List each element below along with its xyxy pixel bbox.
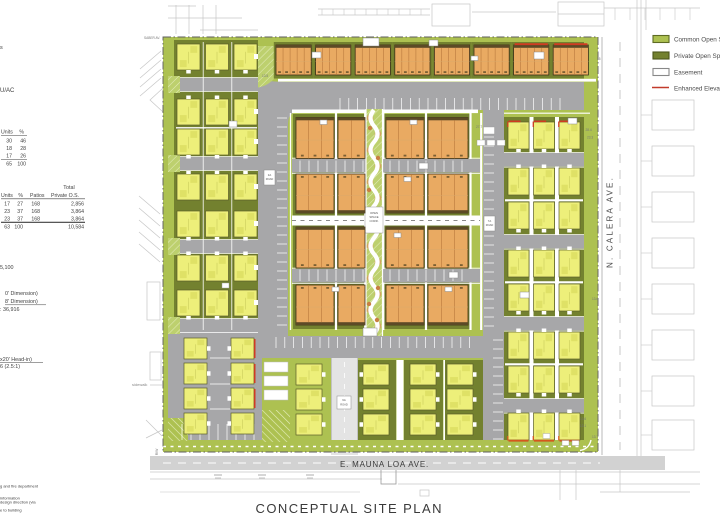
- svg-text:CORR.: CORR.: [369, 219, 378, 223]
- svg-text:27.7: 27.7: [476, 125, 482, 129]
- svg-text:13.7: 13.7: [592, 435, 598, 439]
- svg-text:3,864: 3,864: [71, 216, 84, 222]
- svg-text:Easement: Easement: [674, 70, 703, 77]
- svg-text:37: 37: [17, 216, 23, 222]
- svg-text:23: 23: [4, 216, 10, 222]
- svg-text:CONCEPTUAL SITE PLAN: CONCEPTUAL SITE PLAN: [256, 501, 443, 516]
- svg-text:SABER AV.: SABER AV.: [144, 36, 160, 40]
- svg-text:35: 35: [597, 57, 601, 61]
- svg-text:13.1: 13.1: [580, 424, 586, 428]
- svg-text:%: %: [18, 193, 23, 199]
- svg-text:28: 28: [20, 146, 26, 152]
- svg-text:%: %: [19, 130, 24, 136]
- svg-text:168: 168: [31, 216, 40, 222]
- svg-text:26: 26: [20, 154, 26, 160]
- svg-text:: 36,916: : 36,916: [0, 307, 19, 313]
- svg-text:168: 168: [31, 201, 40, 207]
- svg-text:0' Dimension): 0' Dimension): [5, 291, 38, 297]
- svg-text:g and fire department: g and fire department: [0, 484, 39, 489]
- svg-text:65: 65: [6, 162, 12, 168]
- svg-text:design direction (via: design direction (via: [0, 500, 36, 505]
- svg-text:13.6: 13.6: [580, 417, 586, 421]
- svg-text:Units: Units: [1, 130, 13, 136]
- svg-text:ROAD: ROAD: [486, 223, 494, 227]
- svg-text:8' Dimension): 8' Dimension): [5, 299, 38, 305]
- svg-text:Units: Units: [1, 193, 13, 199]
- svg-text:27: 27: [17, 201, 23, 207]
- svg-text:7A: 7A: [488, 219, 492, 223]
- svg-text:10,584: 10,584: [68, 225, 84, 231]
- svg-text:Total: Total: [63, 185, 74, 191]
- svg-text:3,864: 3,864: [71, 209, 84, 215]
- svg-text:6 (2.5:1): 6 (2.5:1): [0, 364, 20, 370]
- svg-text:3A: 3A: [268, 173, 272, 177]
- svg-text:9A: 9A: [342, 398, 346, 402]
- svg-text:100: 100: [14, 225, 23, 231]
- svg-text:13.6: 13.6: [592, 297, 598, 301]
- svg-text:18: 18: [6, 146, 12, 152]
- svg-text:Enhanced Elevations: Enhanced Elevations: [674, 86, 720, 93]
- svg-text:N. CALERA AVE.: N. CALERA AVE.: [606, 176, 615, 268]
- svg-text:168: 168: [31, 209, 40, 215]
- svg-text:Common Open Space: Common Open Space: [674, 37, 720, 44]
- svg-text:ROAD: ROAD: [266, 177, 274, 181]
- svg-text:Private Open Space: Private Open Space: [674, 53, 720, 60]
- svg-text:U/AC: U/AC: [0, 88, 15, 94]
- svg-text:28.4: 28.4: [586, 128, 592, 132]
- svg-text:17: 17: [6, 154, 12, 160]
- svg-text:37: 37: [17, 209, 23, 215]
- svg-text:e to building: e to building: [0, 508, 22, 513]
- svg-text:2,856: 2,856: [71, 201, 84, 207]
- svg-text:17: 17: [4, 201, 10, 207]
- svg-text:x20' Head-in): x20' Head-in): [0, 357, 32, 363]
- svg-text:23: 23: [4, 209, 10, 215]
- svg-text:100: 100: [17, 162, 26, 168]
- svg-text:63: 63: [4, 225, 10, 231]
- svg-text:E. MAUNA LOA AVE.: E. MAUNA LOA AVE.: [340, 460, 429, 469]
- svg-text:R/W: R/W: [155, 448, 159, 455]
- svg-text:s: s: [0, 45, 3, 51]
- svg-text:23.3: 23.3: [587, 136, 593, 140]
- svg-text:Patios: Patios: [30, 193, 45, 199]
- svg-text:sidewalk: sidewalk: [132, 382, 147, 387]
- svg-text:30: 30: [6, 139, 12, 145]
- svg-text:13.5: 13.5: [262, 74, 268, 78]
- svg-text:5,100: 5,100: [0, 265, 14, 271]
- svg-text:Private O.S.: Private O.S.: [51, 193, 79, 199]
- svg-text:ROAD: ROAD: [340, 403, 348, 407]
- svg-text:46: 46: [20, 139, 26, 145]
